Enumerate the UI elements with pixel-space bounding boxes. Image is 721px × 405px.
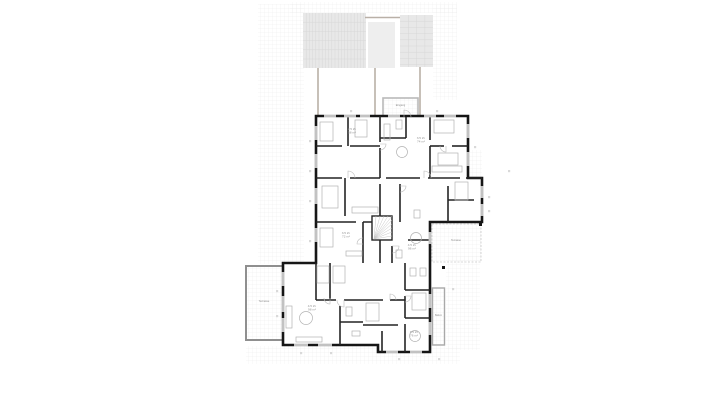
svg-text:Terrasse: Terrasse: [451, 238, 462, 242]
svg-text:3.5 Zi.72 m²: 3.5 Zi.72 m²: [342, 231, 351, 239]
svg-text:Balkon: Balkon: [435, 315, 443, 317]
svg-text:Eingang: Eingang: [396, 103, 406, 107]
svg-text:4.5 Zi.96 m²: 4.5 Zi.96 m²: [408, 243, 417, 251]
svg-text:2.5 Zi.58 m²: 2.5 Zi.58 m²: [348, 127, 357, 135]
entry-porch: [383, 98, 418, 117]
svg-text:3.5 Zi.76 m²: 3.5 Zi.76 m²: [410, 330, 419, 338]
svg-text:3.5 Zi.74 m²: 3.5 Zi.74 m²: [417, 136, 426, 144]
spiral-stair: [372, 216, 392, 240]
svg-text:4.5 Zi.98 m²: 4.5 Zi.98 m²: [308, 304, 317, 312]
floor-plan-page: 2.5 Zi.58 m²3.5 Zi.74 m²3.5 Zi.72 m²4.5 …: [0, 0, 721, 405]
pergola-roof-hatch: [303, 13, 433, 68]
svg-text:Terrasse: Terrasse: [259, 299, 270, 303]
floor-plan-drawing: 2.5 Zi.58 m²3.5 Zi.74 m²3.5 Zi.72 m²4.5 …: [0, 0, 721, 405]
